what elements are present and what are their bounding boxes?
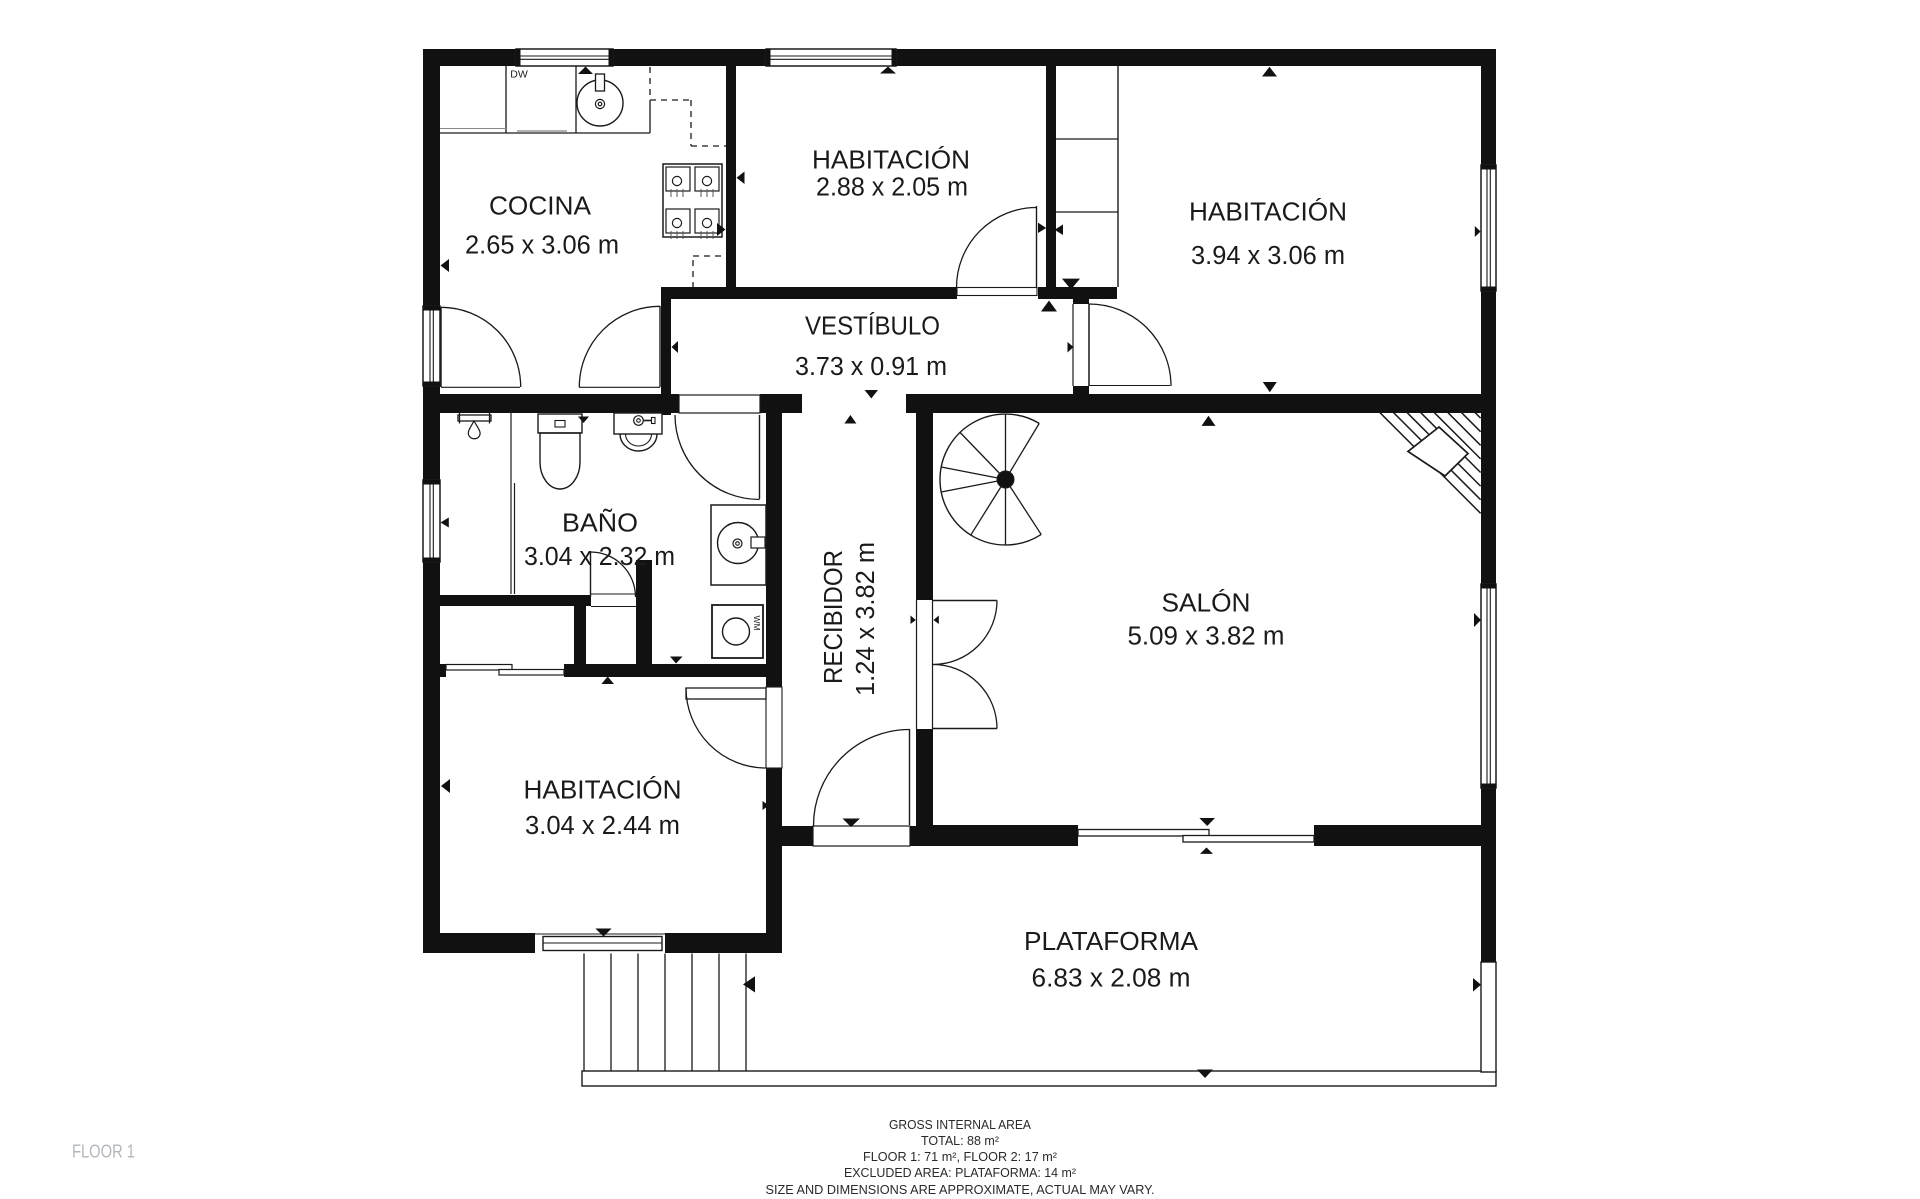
svg-text:2.65 x 3.06 m: 2.65 x 3.06 m xyxy=(465,232,619,260)
svg-text:HABITACIÓN: HABITACIÓN xyxy=(1189,197,1347,226)
svg-text:3.94 x 3.06 m: 3.94 x 3.06 m xyxy=(1191,242,1345,270)
svg-text:SALÓN: SALÓN xyxy=(1162,589,1251,618)
svg-text:VESTÍBULO: VESTÍBULO xyxy=(805,312,940,341)
svg-text:DW: DW xyxy=(510,69,528,81)
svg-text:WM: WM xyxy=(752,615,762,630)
svg-text:PLATAFORMA: PLATAFORMA xyxy=(1024,928,1198,956)
svg-text:HABITACIÓN: HABITACIÓN xyxy=(524,776,682,805)
svg-text:3.04 x 2.44 m: 3.04 x 2.44 m xyxy=(525,812,680,840)
svg-text:6.83 x 2.08 m: 6.83 x 2.08 m xyxy=(1032,965,1191,993)
svg-text:FLOOR 1: 71 m², FLOOR 2: 17 m²: FLOOR 1: 71 m², FLOOR 2: 17 m² xyxy=(863,1149,1058,1164)
svg-text:2.88 x 2.05 m: 2.88 x 2.05 m xyxy=(816,174,968,202)
svg-text:GROSS INTERNAL AREA: GROSS INTERNAL AREA xyxy=(889,1117,1031,1132)
svg-text:TOTAL: 88 m²: TOTAL: 88 m² xyxy=(921,1133,1000,1148)
svg-text:SIZE AND DIMENSIONS ARE APPROX: SIZE AND DIMENSIONS ARE APPROXIMATE, ACT… xyxy=(766,1182,1155,1197)
svg-text:FLOOR 1: FLOOR 1 xyxy=(72,1142,135,1162)
svg-text:3.04 x 2.32 m: 3.04 x 2.32 m xyxy=(524,543,675,571)
svg-text:RECIBIDOR: RECIBIDOR xyxy=(820,550,848,684)
svg-text:1.24 x 3.82 m: 1.24 x 3.82 m xyxy=(852,542,880,696)
svg-text:COCINA: COCINA xyxy=(489,193,591,221)
svg-text:BAÑO: BAÑO xyxy=(562,509,638,538)
svg-text:3.73 x 0.91 m: 3.73 x 0.91 m xyxy=(795,353,947,381)
svg-text:EXCLUDED AREA: PLATAFORMA: 14: EXCLUDED AREA: PLATAFORMA: 14 m² xyxy=(844,1165,1077,1180)
svg-text:5.09 x 3.82 m: 5.09 x 3.82 m xyxy=(1128,623,1285,651)
svg-text:HABITACIÓN: HABITACIÓN xyxy=(812,146,970,175)
